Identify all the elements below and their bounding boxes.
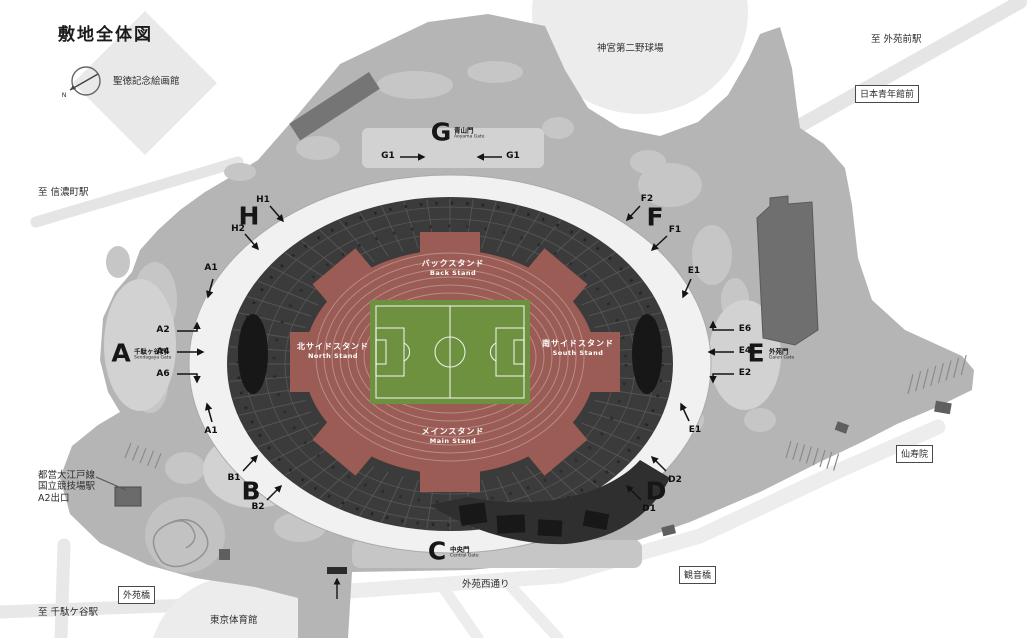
label-kannon-bridge: 観音橋 (679, 566, 716, 584)
label-seinenkan: 日本青年館前 (855, 85, 919, 103)
entrance-a2: A2 (156, 325, 169, 335)
label-tokyo-gymnasium: 東京体育館 (210, 612, 258, 626)
gate-c-name-en: Central Gate (450, 554, 479, 559)
oedo-line-3: A2出口 (38, 493, 95, 504)
entrance-b2: B2 (251, 502, 264, 512)
entrance-f1: F1 (669, 225, 681, 235)
entrance-e4: E4 (739, 346, 751, 356)
back-stand-jp: バックスタンド (422, 259, 485, 269)
entrance-b1: B1 (227, 473, 240, 483)
label-picture-gallery: 聖徳記念絵画館 (113, 73, 180, 87)
label-to-sendagaya: 至 千駄ケ谷駅 (38, 604, 98, 618)
gate-c-letter: C (428, 537, 446, 566)
gate-f-letter: F (646, 203, 663, 232)
entrance-e2: E2 (739, 368, 751, 378)
entrance-e6: E6 (739, 324, 751, 334)
entrance-f2: F2 (641, 194, 653, 204)
entrance-d1: D1 (642, 504, 656, 514)
gate-e-name-en: Gaien Gate (769, 356, 794, 361)
subway-exit-building (115, 487, 141, 506)
main-stand-en: Main Stand (422, 437, 485, 445)
entrance-a1-top: A1 (204, 263, 217, 273)
monument-marker (327, 567, 347, 574)
oedo-line-1: 都営大江戸線 (38, 470, 95, 481)
label-to-gaienmae: 至 外苑前駅 (871, 31, 922, 45)
label-main-stand: メインスタンド Main Stand (422, 427, 485, 445)
entrance-g1-right: G1 (506, 151, 520, 161)
entrance-h2: H2 (231, 224, 245, 234)
north-stand-jp: 北サイドスタンド (297, 342, 369, 352)
oedo-line-2: 国立競技場駅 (38, 481, 95, 492)
north-stand-en: North Stand (297, 352, 369, 360)
gate-c-name: 中央門 Central Gate (450, 547, 479, 560)
gate-g-name: 青山門 Aoyama Gate (454, 128, 485, 141)
gate-a-letter: A (111, 339, 130, 368)
entrance-d2: D2 (668, 475, 682, 485)
label-gaien-bridge: 外苑橋 (118, 586, 155, 604)
gate-g-name-en: Aoyama Gate (454, 135, 485, 140)
gate-d-letter: D (646, 477, 667, 506)
label-oedo-line: 都営大江戸線 国立競技場駅 A2出口 (38, 470, 95, 504)
entrance-e1-bottom: E1 (689, 425, 701, 435)
label-to-shinanomachi: 至 信濃町駅 (38, 184, 89, 198)
gate-g-letter: G (431, 118, 452, 147)
entrance-a1-bottom: A1 (204, 426, 217, 436)
east-building (757, 196, 818, 345)
compass-north-label: N (62, 91, 67, 99)
entrance-a6: A6 (156, 369, 169, 379)
label-jingu-baseball: 神宮第二野球場 (597, 40, 664, 54)
entrance-g1-left: G1 (381, 151, 395, 161)
label-gaien-nishi-dori: 外苑西通り (462, 576, 510, 590)
site-overall-map: 敷地全体図 N 聖徳記念絵画館 神宮第二野球場 至 外苑前駅 日本青年館前 至 … (0, 0, 1034, 638)
back-stand-en: Back Stand (422, 269, 485, 277)
east-void (632, 314, 662, 394)
label-senjuin: 仙寿院 (896, 445, 933, 463)
west-void (238, 314, 268, 394)
label-south-stand: 南サイドスタンド South Stand (542, 339, 614, 357)
label-north-stand: 北サイドスタンド North Stand (297, 342, 369, 360)
entrance-h1: H1 (256, 195, 270, 205)
gate-e-name: 外苑門 Gaien Gate (769, 349, 794, 362)
label-back-stand: バックスタンド Back Stand (422, 259, 485, 277)
main-stand-jp: メインスタンド (422, 427, 485, 437)
south-stand-en: South Stand (542, 349, 614, 357)
entrance-a4: A4 (156, 347, 169, 357)
south-stand-jp: 南サイドスタンド (542, 339, 614, 349)
entrance-e1-top: E1 (688, 266, 700, 276)
page-title: 敷地全体図 (58, 20, 153, 45)
